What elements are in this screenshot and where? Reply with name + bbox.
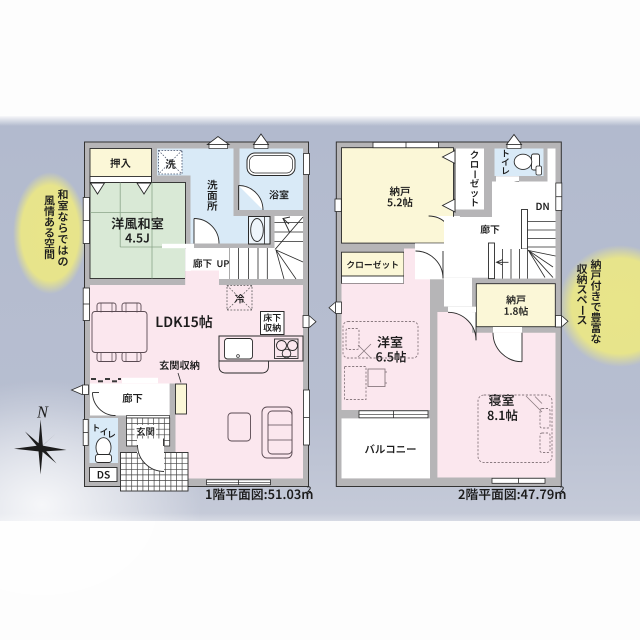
svg-text:N: N xyxy=(36,403,49,422)
